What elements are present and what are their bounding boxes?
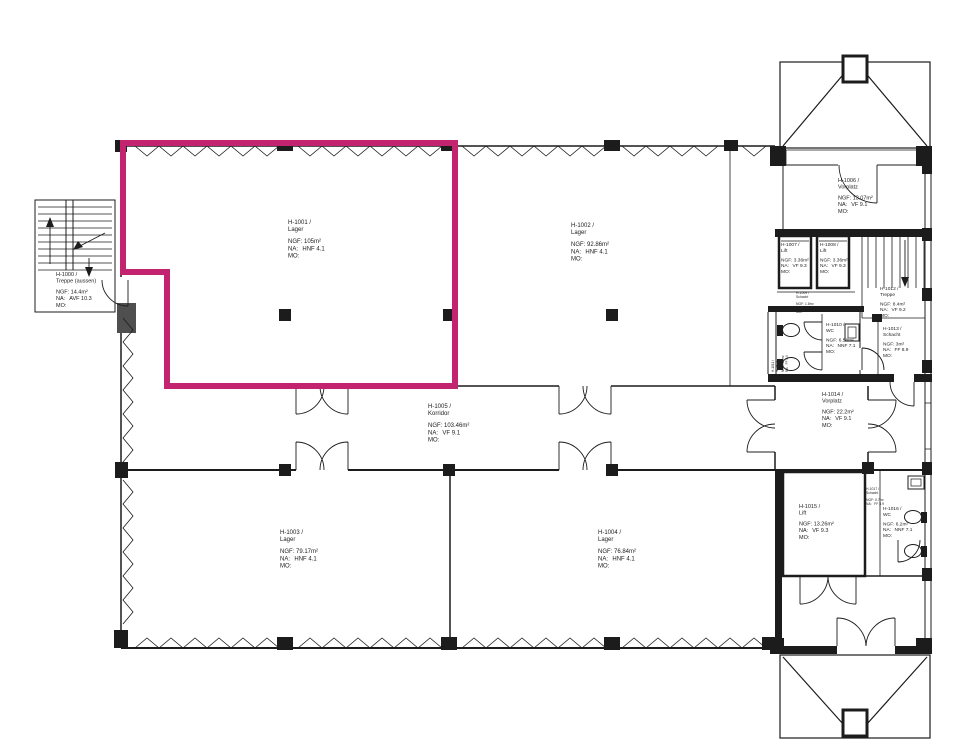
label-h1001-na_label: NA: bbox=[288, 246, 298, 252]
room-label-h1012: H-1012 /TreppeNGF: 8.4m²NA:VF 9.2MO: bbox=[880, 286, 906, 319]
label-h1007-ngf: NGF: 3.36m² bbox=[781, 257, 809, 263]
selected-room-outline-h1001[interactable] bbox=[123, 143, 455, 386]
arrow-down-icon bbox=[85, 267, 93, 277]
entrance-pillar bbox=[117, 303, 136, 333]
room-label-h1005: H-1005 /KorridorNGF: 103.46m²NA:VF 9.1MO… bbox=[428, 404, 469, 444]
label-h1000-mo: MO: bbox=[56, 303, 67, 309]
double-door bbox=[296, 386, 348, 414]
label-h1000-id: H-1000 / bbox=[56, 272, 78, 278]
room-label-h1004: H-1004 /LagerNGF: 76.84m²NA:HNF 4.1MO: bbox=[598, 530, 636, 570]
label-h1003-na: HNF 4.1 bbox=[294, 556, 317, 562]
label-h1011-na_label: NA: bbox=[785, 367, 789, 372]
column bbox=[443, 464, 455, 476]
toilet-bowl bbox=[783, 324, 800, 337]
label-h1002-name: Lager bbox=[571, 230, 586, 236]
label-h1014-na_label: NA: bbox=[822, 416, 832, 422]
label-h1009-mo: MO: bbox=[796, 310, 802, 314]
column bbox=[606, 309, 618, 321]
label-h1011-name: Schacht bbox=[775, 360, 779, 372]
label-h1010-mo: MO: bbox=[826, 349, 835, 355]
label-h1015-name: Lift bbox=[799, 511, 807, 517]
double-door bbox=[559, 442, 611, 470]
double-door bbox=[800, 576, 856, 604]
label-h1014-id: H-1014 / bbox=[822, 392, 844, 398]
label-h1007-id: H-1007 / bbox=[781, 242, 800, 248]
label-h1014-na: VF 9.1 bbox=[835, 416, 851, 422]
label-h1000-ngf: NGF: 14.4m² bbox=[56, 290, 88, 296]
double-door bbox=[837, 618, 895, 646]
label-h1003-name: Lager bbox=[280, 537, 295, 543]
room-label-h1006: H-1006 /VorplatzNGF: 13.07m²NA:VF 9.1MO: bbox=[838, 178, 873, 215]
label-h1017-name: Schacht bbox=[866, 491, 878, 495]
label-h1015-id: H-1015 / bbox=[799, 504, 821, 510]
label-h1015-na: VF 9.3 bbox=[812, 528, 828, 534]
room-label-h1017: H-1017 /SchachtNGF: 0.7m²NA:FF 8.9 bbox=[866, 487, 885, 506]
label-h1010-na: NNF 7.1 bbox=[838, 343, 856, 349]
label-h1007-na: VF 9.3 bbox=[793, 263, 807, 269]
room-label-h1000: H-1000 /Treppe (aussen)NGF: 14.4m²NA:AVF… bbox=[56, 272, 96, 309]
label-h1004-id: H-1004 / bbox=[598, 530, 621, 536]
label-h1000-name: Treppe (aussen) bbox=[56, 279, 96, 285]
label-h1005-ngf: NGF: 103.46m² bbox=[428, 423, 469, 429]
label-h1003-id: H-1003 / bbox=[280, 530, 303, 536]
column bbox=[279, 464, 291, 476]
label-h1004-ngf: NGF: 76.84m² bbox=[598, 549, 636, 555]
label-h1016-na_label: NA: bbox=[883, 527, 891, 533]
label-h1008-na_label: NA: bbox=[820, 263, 828, 269]
label-h1007-mo: MO: bbox=[781, 269, 790, 275]
label-h1014-ngf: NGF: 22.2m² bbox=[822, 410, 854, 416]
label-h1006-ngf: NGF: 13.07m² bbox=[838, 196, 873, 202]
column bbox=[279, 309, 291, 321]
label-h1011-na: FF 8.9 bbox=[785, 355, 789, 364]
label-h1010-id: H-1010 / bbox=[826, 322, 845, 328]
label-h1008-id: H-1008 / bbox=[820, 242, 839, 248]
label-h1016-id: H-1016 / bbox=[883, 506, 902, 512]
double-door bbox=[559, 386, 611, 414]
label-h1012-id: H-1012 / bbox=[880, 286, 899, 292]
label-h1002-ngf: NGF: 92.86m² bbox=[571, 242, 609, 248]
label-h1002-na: HNF 4.1 bbox=[585, 249, 608, 255]
label-h1001-id: H-1001 / bbox=[288, 220, 311, 226]
label-h1006-na: VF 9.1 bbox=[851, 202, 867, 208]
label-h1008-mo: MO: bbox=[820, 269, 829, 275]
room-label-h1001[interactable]: H-1001 /LagerNGF: 105m²NA:HNF 4.1MO: bbox=[288, 220, 325, 260]
label-h1014-name: Vorplatz bbox=[822, 399, 842, 405]
label-h1014-mo: MO: bbox=[822, 423, 833, 429]
label-h1012-na: VF 9.2 bbox=[892, 307, 906, 313]
label-h1007-na_label: NA: bbox=[781, 263, 789, 269]
label-h1009-name: Schacht bbox=[796, 295, 808, 299]
label-h1001-name: Lager bbox=[288, 227, 303, 233]
label-h1005-na: VF 9.1 bbox=[442, 430, 460, 436]
label-h1004-name: Lager bbox=[598, 537, 613, 543]
label-h1013-name: Schacht bbox=[883, 332, 901, 338]
label-h1012-mo: MO: bbox=[880, 313, 889, 319]
label-h1012-name: Treppe bbox=[880, 292, 895, 298]
double-door bbox=[296, 442, 348, 470]
single-door bbox=[862, 348, 884, 370]
label-h1002-na_label: NA: bbox=[571, 249, 581, 255]
label-h1016-na: NNF 7.1 bbox=[895, 527, 913, 533]
label-h1007-name: Lift bbox=[781, 248, 788, 254]
label-h1004-mo: MO: bbox=[598, 564, 610, 570]
label-h1016-name: WC bbox=[883, 512, 892, 518]
label-h1013-na_label: NA: bbox=[883, 347, 891, 353]
label-h1008-name: Lift bbox=[820, 248, 827, 254]
label-h1006-id: H-1006 / bbox=[838, 178, 860, 184]
label-h1000-na: AVF 10.3 bbox=[69, 296, 92, 302]
label-h1010-na_label: NA: bbox=[826, 343, 834, 349]
label-h1013-mo: MO: bbox=[883, 353, 892, 359]
label-h1016-ngf: NGF: 6.2m² bbox=[883, 521, 908, 527]
double-door bbox=[747, 400, 775, 452]
window-sills bbox=[123, 146, 766, 648]
label-h1015-ngf: NGF: 13.26m² bbox=[799, 522, 834, 528]
room-label-h1014: H-1014 /VorplatzNGF: 22.2m²NA:VF 9.1MO: bbox=[822, 392, 854, 429]
label-h1012-ngf: NGF: 8.4m² bbox=[880, 301, 905, 307]
double-door bbox=[868, 400, 896, 452]
label-h1010-name: WC bbox=[826, 328, 835, 334]
stair-treads-h1000 bbox=[38, 207, 112, 270]
label-h1004-na: HNF 4.1 bbox=[612, 556, 635, 562]
single-door bbox=[890, 382, 914, 406]
room-label-h1002: H-1002 /LagerNGF: 92.86m²NA:HNF 4.1MO: bbox=[571, 223, 609, 263]
label-h1013-na: FF 8.9 bbox=[895, 347, 909, 353]
label-h1005-name: Korridor bbox=[428, 411, 449, 417]
walls-wing bbox=[768, 150, 931, 648]
label-h1009-na: FF 8.9 bbox=[804, 306, 814, 310]
room-label-h1013: H-1013 /SchachtNGF: 3m²NA:FF 8.9MO: bbox=[883, 326, 909, 359]
stair-treads-h1012 bbox=[868, 234, 924, 288]
label-h1003-na_label: NA: bbox=[280, 556, 290, 562]
label-h1013-id: H-1013 / bbox=[883, 326, 902, 332]
sink bbox=[908, 476, 924, 489]
label-h1008-ngf: NGF: 3.36m² bbox=[820, 257, 848, 263]
label-h1000-na_label: NA: bbox=[56, 296, 66, 302]
exterior-stair-bottom bbox=[780, 655, 930, 738]
label-h1005-mo: MO: bbox=[428, 438, 440, 444]
exterior-stair-top bbox=[780, 56, 930, 148]
label-h1005-na_label: NA: bbox=[428, 430, 438, 436]
label-h1008-na: VF 9.3 bbox=[832, 263, 846, 269]
label-h1006-na_label: NA: bbox=[838, 202, 848, 208]
label-h1006-mo: MO: bbox=[838, 209, 849, 215]
label-h1017-na: FF 8.9 bbox=[874, 502, 884, 506]
single-door bbox=[898, 540, 920, 562]
label-h1001-ngf: NGF: 105m² bbox=[288, 239, 321, 245]
column bbox=[606, 464, 618, 476]
label-h1003-mo: MO: bbox=[280, 564, 292, 570]
label-h1016-mo: MO: bbox=[883, 533, 892, 539]
label-h1002-id: H-1002 / bbox=[571, 223, 594, 229]
label-h1005-id: H-1005 / bbox=[428, 404, 451, 410]
label-h1001-na: HNF 4.1 bbox=[302, 246, 325, 252]
label-h1013-ngf: NGF: 3m² bbox=[883, 341, 904, 347]
label-h1015-mo: MO: bbox=[799, 535, 810, 541]
label-h1004-na_label: NA: bbox=[598, 556, 608, 562]
label-h1001-mo: MO: bbox=[288, 254, 300, 260]
floor-plan-svg: H-1000 /Treppe (aussen)NGF: 14.4m²NA:AVF… bbox=[0, 0, 971, 746]
floor-plan-page: H-1000 /Treppe (aussen)NGF: 14.4m²NA:AVF… bbox=[0, 0, 971, 746]
label-h1003-ngf: NGF: 79.17m² bbox=[280, 549, 318, 555]
label-h1017-na_label: NA: bbox=[866, 502, 872, 506]
label-h1002-mo: MO: bbox=[571, 257, 583, 263]
label-h1010-ngf: NGF: 6.58m² bbox=[826, 337, 854, 343]
room-label-h1003: H-1003 /LagerNGF: 79.17m²NA:HNF 4.1MO: bbox=[280, 530, 318, 570]
arrow-up-icon bbox=[46, 217, 54, 227]
label-h1012-na_label: NA: bbox=[880, 307, 888, 313]
label-h1006-name: Vorplatz bbox=[838, 185, 858, 191]
wc-stall-doors bbox=[804, 322, 822, 370]
label-h1015-na_label: NA: bbox=[799, 528, 809, 534]
